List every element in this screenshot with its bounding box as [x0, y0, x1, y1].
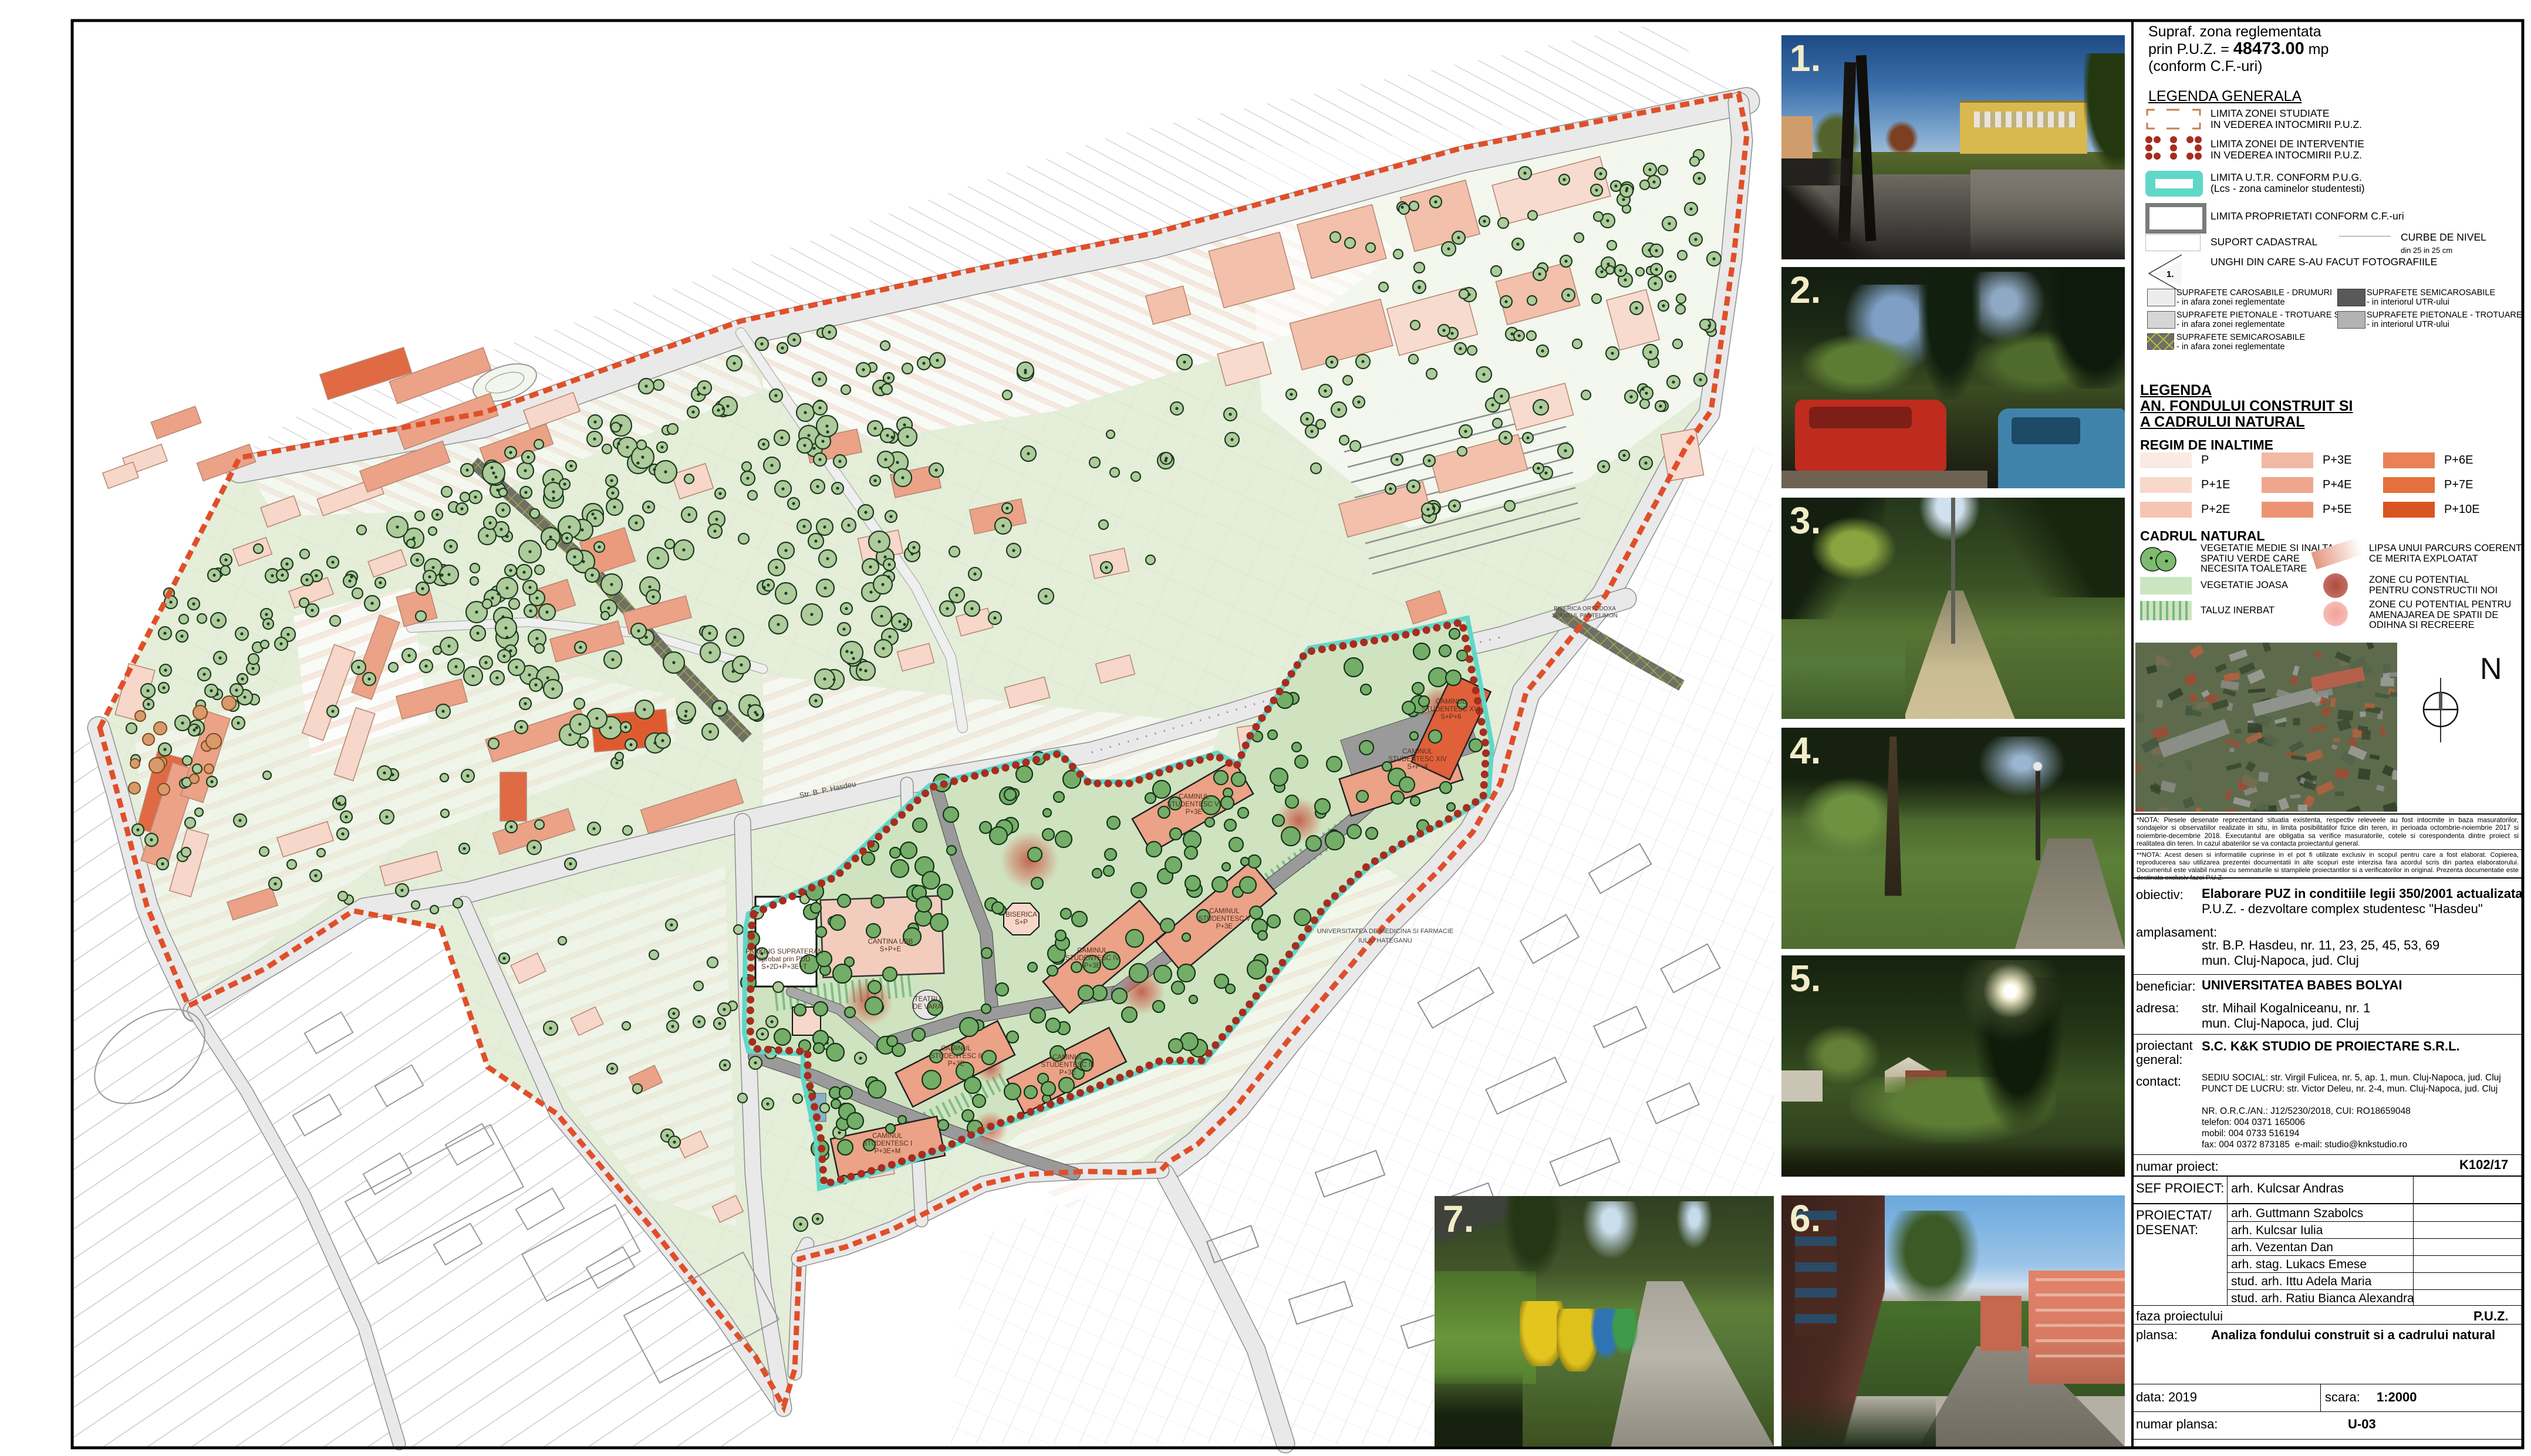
svg-text:BISERICA: BISERICA — [1005, 911, 1037, 918]
svg-text:STUDENTESC III: STUDENTESC III — [1041, 1062, 1095, 1069]
svg-text:STUDENTESC V: STUDENTESC V — [1199, 916, 1251, 923]
svg-text:P+3E+M: P+3E+M — [875, 1148, 901, 1155]
svg-text:CANTINA UBB: CANTINA UBB — [868, 938, 913, 945]
svg-text:CAMINUL: CAMINUL — [1179, 793, 1209, 800]
svg-text:BISERICA ORTODOXA: BISERICA ORTODOXA — [1554, 606, 1616, 612]
svg-text:S+2D+P+3E+T: S+2D+P+3E+T — [761, 964, 807, 971]
svg-text:STUDENTESC IV: STUDENTESC IV — [1065, 955, 1119, 962]
svg-text:UNIVERSITATEA DE MEDICINA SI F: UNIVERSITATEA DE MEDICINA SI FARMACIE — [1317, 928, 1453, 935]
svg-text:S+P+E: S+P+E — [880, 946, 902, 953]
svg-text:S+P: S+P — [1015, 919, 1028, 926]
svg-text:CAMINUL: CAMINUL — [1209, 908, 1240, 915]
svg-text:P+3E: P+3E — [1059, 1069, 1076, 1076]
svg-text:STUDENTESC I: STUDENTESC I — [863, 1140, 912, 1147]
svg-text:CAMINUL: CAMINUL — [1052, 1054, 1083, 1061]
svg-text:STUDENTESC XVI: STUDENTESC XVI — [1422, 706, 1480, 713]
svg-text:1.: 1. — [2166, 269, 2174, 279]
svg-text:CAMINUL: CAMINUL — [1436, 698, 1466, 705]
svg-text:STUDENTESC XIV: STUDENTESC XIV — [1388, 756, 1447, 763]
svg-text:S+P+6: S+P+6 — [1440, 714, 1461, 721]
svg-text:N: N — [2480, 652, 2502, 686]
svg-text:CAMINUL: CAMINUL — [1077, 947, 1108, 954]
svg-text:IULIU HATEGANU: IULIU HATEGANU — [1358, 937, 1412, 944]
svg-text:P+3E: P+3E — [948, 1060, 965, 1067]
svg-text:P+3E: P+3E — [1216, 923, 1233, 930]
svg-text:PARKING SUPRATERAN: PARKING SUPRATERAN — [745, 948, 823, 955]
svg-text:aprobat prin PUD: aprobat prin PUD — [758, 956, 811, 963]
svg-text:STUDENTESC II: STUDENTESC II — [930, 1053, 982, 1060]
svg-text:SFANTUL PANTELIMON: SFANTUL PANTELIMON — [1552, 613, 1618, 619]
svg-text:STUDENTESC VI: STUDENTESC VI — [1167, 801, 1221, 808]
svg-text:TEATRU: TEATRU — [914, 996, 940, 1003]
svg-text:P+3E: P+3E — [1084, 962, 1101, 969]
svg-text:P+3E: P+3E — [1186, 809, 1203, 816]
svg-text:CAMINUL: CAMINUL — [941, 1045, 971, 1052]
svg-text:CAMINUL: CAMINUL — [872, 1133, 903, 1140]
svg-text:S+P+4: S+P+4 — [1407, 764, 1428, 771]
svg-text:CAMINUL: CAMINUL — [1402, 748, 1433, 755]
svg-text:DE VARA: DE VARA — [913, 1004, 942, 1011]
